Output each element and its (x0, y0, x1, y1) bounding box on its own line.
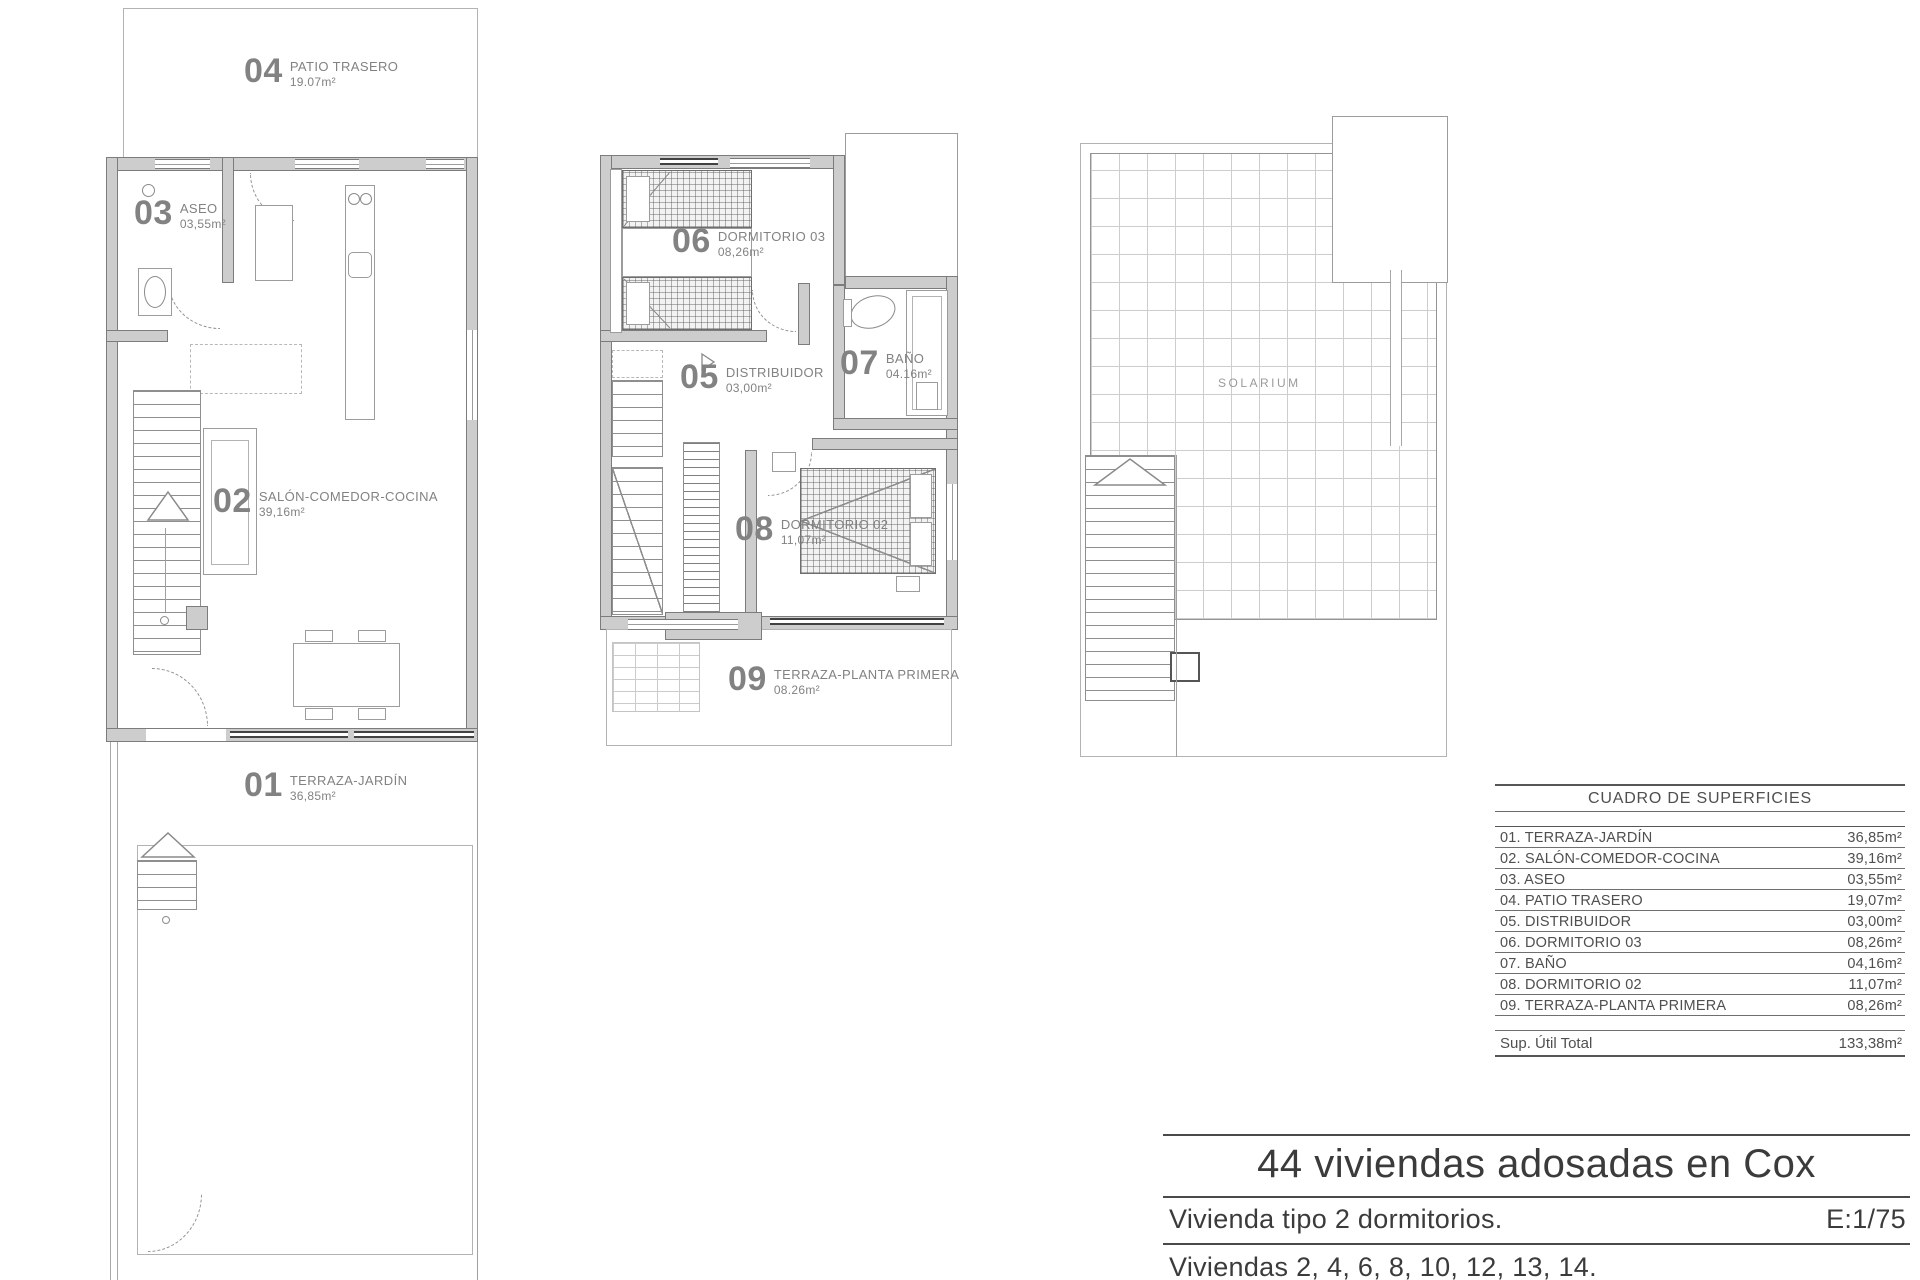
room-area: 36,85m² (290, 789, 408, 803)
sink-basin (144, 276, 166, 308)
row-value: 39,16m² (1847, 851, 1902, 867)
row-value: 08,26m² (1847, 935, 1902, 951)
project-title: 44 viviendas adosadas en Cox (1163, 1136, 1910, 1196)
solarium-label: SOLARIUM (1218, 376, 1301, 390)
room-name: SALÓN-COMEDOR-COCINA (259, 489, 438, 505)
wall-segment (833, 418, 958, 430)
stair-void-dashed (190, 344, 302, 394)
room-label-salon: 02 SALÓN-COMEDOR-COCINA39,16m² (213, 488, 438, 519)
nightstand (896, 576, 920, 592)
chair (358, 630, 386, 642)
table-row: 04. PATIO TRASERO19,07m² (1495, 890, 1905, 911)
glass-door (230, 731, 348, 738)
dining-table (293, 643, 400, 707)
row-label: 04. PATIO TRASERO (1500, 893, 1643, 909)
row-value: 04,16m² (1847, 956, 1902, 972)
garden-boundary (110, 742, 118, 1280)
table-row: 03. ASEO03,55m² (1495, 869, 1905, 890)
room-number: 03 (134, 200, 173, 228)
kitchen-island (255, 205, 293, 281)
garden-steps (137, 860, 197, 910)
room-area: 03,00m² (726, 381, 824, 395)
garden-boundary (477, 742, 478, 1280)
row-label: 08. DORMITORIO 02 (1500, 977, 1642, 993)
window (295, 159, 359, 169)
units-list: Viviendas 2, 4, 6, 8, 10, 12, 13, 14. (1163, 1245, 1910, 1280)
row-value: 36,85m² (1847, 830, 1902, 846)
table-total-row: Sup. Útil Total133,38m² (1495, 1030, 1905, 1057)
row-value: 03,55m² (1847, 872, 1902, 888)
table-row: 08. DORMITORIO 0211,07m² (1495, 974, 1905, 995)
row-label: 02. SALÓN-COMEDOR-COCINA (1500, 851, 1720, 867)
hob-burner (360, 193, 372, 205)
hob-burner (348, 193, 360, 205)
door-arc (752, 290, 796, 332)
door-opening (146, 729, 226, 741)
stair-arrow-icon (145, 490, 191, 522)
kitchen-counter (345, 185, 375, 420)
room-name: DORMITORIO 03 (718, 229, 826, 245)
nightstand (772, 452, 796, 472)
wall-segment (106, 157, 118, 742)
table-row: 05. DISTRIBUIDOR03,00m² (1495, 911, 1905, 932)
roof-detail (1390, 270, 1402, 446)
wall-segment (833, 155, 845, 285)
row-value: 11,07m² (1848, 977, 1902, 993)
window (426, 159, 464, 169)
room-number: 05 (680, 364, 719, 392)
toilet-tank (843, 299, 852, 327)
wall-segment (845, 276, 958, 289)
row-label: 01. TERRAZA-JARDÍN (1500, 830, 1652, 846)
row-value: 08,26m² (1847, 998, 1902, 1014)
room-number: 01 (244, 772, 283, 800)
total-value: 133,38m² (1839, 1035, 1902, 1052)
stair-void-dashed (612, 350, 663, 378)
wall-segment (600, 330, 767, 342)
room-label-terraza-jardin: 01 TERRAZA-JARDÍN36,85m² (244, 772, 407, 803)
table-row: 09. TERRAZA-PLANTA PRIMERA08,26m² (1495, 995, 1905, 1016)
stair-arrow-icon (139, 831, 197, 859)
door-arc (152, 668, 208, 726)
drawing-scale: E:1/75 (1826, 1204, 1906, 1235)
room-number: 06 (672, 228, 711, 256)
row-label: 09. TERRAZA-PLANTA PRIMERA (1500, 998, 1726, 1014)
dwelling-type-row: Vivienda tipo 2 dormitorios. E:1/75 (1163, 1198, 1910, 1243)
dwelling-type: Vivienda tipo 2 dormitorios. (1169, 1204, 1503, 1235)
room-name: DORMITORIO 02 (781, 517, 889, 533)
table-title: CUADRO DE SUPERFICIES (1495, 786, 1905, 812)
stair-landing (1170, 652, 1200, 682)
room-label-distribuidor: 05 DISTRIBUIDOR03,00m² (680, 364, 824, 395)
room-number: 09 (728, 666, 767, 694)
room-name: DISTRIBUIDOR (726, 365, 824, 381)
room-label-aseo: 03 ASEO03,55m² (134, 200, 226, 231)
room-area: 08.26m² (774, 683, 960, 697)
stair-guide-end (162, 916, 170, 924)
room-area: 08,26m² (718, 245, 826, 259)
room-label-bano: 07 BAÑO04.16m² (840, 350, 932, 381)
room-number: 07 (840, 350, 879, 378)
glass-door (770, 618, 944, 625)
room-label-dormitorio2: 08 DORMITORIO 0211,07m² (735, 516, 888, 547)
pillow (626, 282, 650, 325)
pillow (910, 522, 932, 566)
chair (305, 630, 333, 642)
wall-segment (106, 330, 168, 342)
room-area: 19.07m² (290, 75, 399, 89)
staircase (612, 380, 663, 457)
void-boundary (845, 133, 958, 281)
wall-segment (798, 283, 810, 345)
stair-cut-line (612, 467, 663, 615)
room-name: ASEO (180, 201, 226, 217)
glass-door (354, 731, 474, 738)
bed-headboard (610, 169, 622, 333)
room-name: PATIO TRASERO (290, 59, 399, 75)
table-row: 06. DORMITORIO 0308,26m² (1495, 932, 1905, 953)
window (660, 158, 718, 165)
stair-guide-end (160, 616, 169, 625)
row-label: 07. BAÑO (1500, 956, 1567, 972)
door-arc (168, 281, 220, 329)
roof-void (1332, 116, 1448, 283)
row-value: 03,00m² (1847, 914, 1902, 930)
window (946, 484, 958, 560)
pillow (910, 474, 932, 518)
row-value: 19,07m² (1847, 893, 1902, 909)
title-block: 44 viviendas adosadas en Cox Vivienda ti… (1163, 1134, 1910, 1280)
room-name: TERRAZA-PLANTA PRIMERA (774, 667, 960, 683)
room-label-patio: 04 PATIO TRASERO19.07m² (244, 58, 398, 89)
stair-post (186, 606, 208, 630)
room-area: 04.16m² (886, 367, 932, 381)
row-label: 03. ASEO (1500, 872, 1565, 888)
staircase (1085, 455, 1175, 701)
stair-guide-line (165, 528, 166, 612)
room-label-terraza-primera: 09 TERRAZA-PLANTA PRIMERA08.26m² (728, 666, 959, 697)
room-area: 03,55m² (180, 217, 226, 231)
stair-projection (612, 642, 700, 712)
table-row: 02. SALÓN-COMEDOR-COCINA39,16m² (1495, 848, 1905, 869)
floor-plan-sheet: 04 PATIO TRASERO19.07m² 03 ASEO03,55m² 0… (0, 0, 1920, 1280)
kitchen-sink (348, 252, 372, 278)
room-area: 39,16m² (259, 505, 438, 519)
shower-drain (916, 382, 938, 410)
window (155, 159, 210, 169)
room-name: TERRAZA-JARDÍN (290, 773, 408, 789)
table-row: 07. BAÑO04,16m² (1495, 953, 1905, 974)
toilet (846, 290, 900, 335)
room-number: 04 (244, 58, 283, 86)
stair-arrow-icon (1092, 457, 1168, 487)
wall-segment (812, 438, 958, 450)
table-row: 01. TERRAZA-JARDÍN36,85m² (1495, 827, 1905, 848)
row-label: 05. DISTRIBUIDOR (1500, 914, 1631, 930)
window (730, 158, 810, 168)
room-label-dormitorio3: 06 DORMITORIO 0308,26m² (672, 228, 825, 259)
row-label: 06. DORMITORIO 03 (1500, 935, 1642, 951)
chair (358, 708, 386, 720)
room-number: 08 (735, 516, 774, 544)
room-number: 02 (213, 488, 252, 516)
pillow (626, 176, 650, 222)
room-name: BAÑO (886, 351, 932, 367)
table-rule (1495, 812, 1905, 827)
room-area: 11,07m² (781, 533, 889, 547)
surface-table: CUADRO DE SUPERFICIES 01. TERRAZA-JARDÍN… (1495, 784, 1905, 1057)
wall-segment (466, 157, 478, 742)
chair (305, 708, 333, 720)
roof-divider-line (1176, 455, 1177, 757)
staircase (683, 442, 720, 615)
window (628, 619, 738, 630)
total-label: Sup. Útil Total (1500, 1035, 1592, 1052)
window (466, 330, 478, 420)
